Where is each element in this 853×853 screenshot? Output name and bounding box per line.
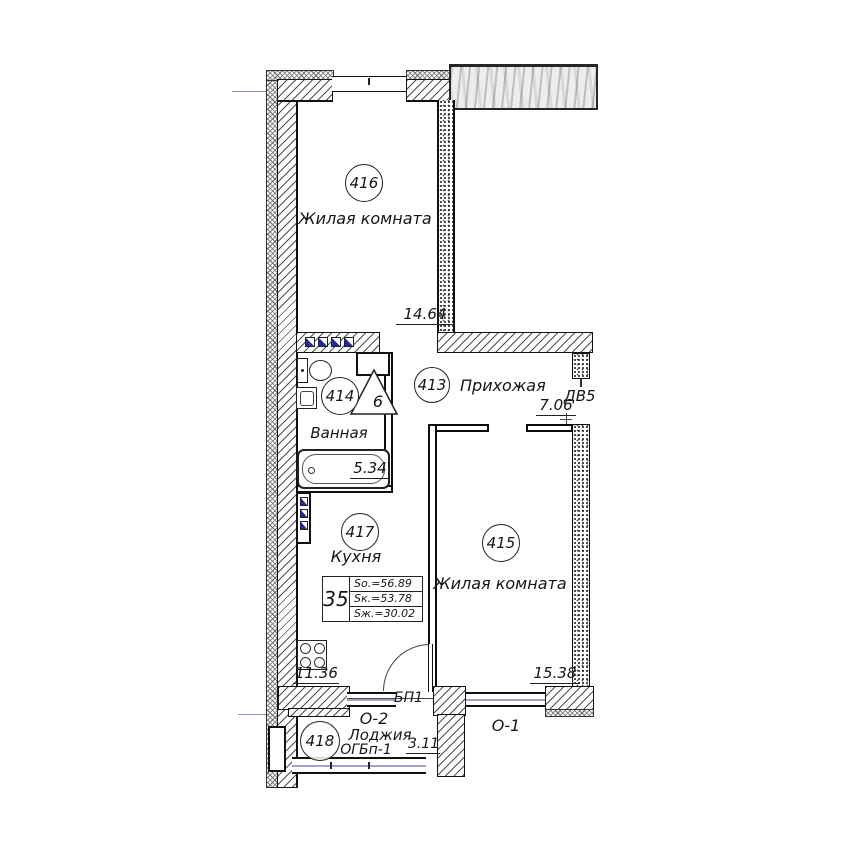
- toilet-cistern: [297, 358, 308, 383]
- stove-burner: [300, 643, 311, 654]
- door-bp1-label: БП1: [394, 690, 423, 706]
- bottom-right-wall: [545, 686, 594, 711]
- room-417-area: 11.36: [293, 664, 339, 684]
- room-416-top-window: [332, 76, 407, 92]
- radiator-symbol: [344, 337, 354, 347]
- room-418-area: 3.11: [406, 736, 440, 754]
- room-416-circle: 416: [345, 164, 383, 202]
- radiator-symbol: [318, 337, 328, 347]
- glazing-mullion: [368, 762, 370, 769]
- radiator-symbol: [331, 337, 341, 347]
- living-area-row: Sж.=30.02: [350, 607, 422, 621]
- room-416-number: 416: [350, 174, 379, 192]
- loggia-top-step: [288, 708, 350, 717]
- apartment-number: 35: [323, 577, 350, 621]
- room-417-number: 417: [346, 523, 375, 541]
- window-mullion-tick: [368, 78, 370, 85]
- right-wall-room-415: [572, 424, 590, 690]
- loggia-right-wall: [437, 714, 465, 777]
- room-415-top-wall-left: [428, 424, 489, 432]
- shaft-marker: [300, 509, 308, 518]
- bottom-right-wall-outer-layer: [545, 709, 594, 717]
- sink: [296, 387, 317, 409]
- window-o1-label: О-1: [480, 716, 532, 735]
- sink-basin: [300, 391, 314, 406]
- radiator-symbol: [305, 337, 315, 347]
- door-dv5-label: ДВ5: [564, 387, 596, 405]
- top-wall-left: [277, 79, 333, 102]
- top-wall-right: [406, 79, 450, 102]
- room-415-number: 415: [487, 534, 516, 552]
- mid-wall-right: [437, 332, 593, 353]
- balcony-door-swing-arc: [383, 644, 430, 691]
- bathtub-drain: [308, 467, 315, 474]
- stove-burner: [314, 643, 325, 654]
- room-414-area: 5.34: [350, 459, 390, 479]
- balcony-door-leaf: [428, 644, 433, 692]
- room-417-circle: 417: [341, 513, 379, 551]
- room-415-circle: 415: [482, 524, 520, 562]
- room-414-name: Ванная: [307, 424, 371, 442]
- room-417-name: Кухня: [320, 547, 392, 566]
- loggia-left-pilaster: [268, 726, 286, 772]
- kitchen-vent-shaft: [296, 492, 311, 544]
- apartment-area-row: Sк.=53.78: [350, 592, 422, 607]
- room-415-window-o1: [466, 692, 545, 707]
- shaft-marker: [300, 497, 308, 506]
- room-416-area: 14.64: [396, 305, 454, 325]
- toilet-bowl: [309, 360, 332, 381]
- kitchen-window-o2: [347, 692, 396, 707]
- pier-between-door-and-window: [433, 686, 466, 716]
- top-right-rough-wall: [449, 64, 598, 110]
- room-413-name: Прихожая: [460, 376, 544, 395]
- room-414-number: 414: [326, 387, 355, 405]
- pier-tick: [580, 379, 582, 387]
- room-414-circle: 414: [321, 377, 359, 415]
- room-415-top-wall-right: [526, 424, 573, 432]
- glazing-mullion: [330, 762, 332, 769]
- right-wall-pier-top: [572, 353, 590, 379]
- glazing: [292, 765, 426, 767]
- total-area-row: Sо.=56.89: [350, 577, 422, 592]
- toilet-button: [301, 369, 304, 372]
- apartment-info-table: 35 Sо.=56.89 Sк.=53.78 Sж.=30.02: [322, 576, 423, 622]
- room-415-name: Жилая комната: [433, 574, 567, 593]
- room-413-circle: 413: [414, 367, 450, 403]
- glazing: [466, 699, 545, 701]
- partition-416-right: [437, 100, 455, 334]
- kitchen-bottom-wall: [278, 686, 350, 710]
- shaft-marker: [300, 521, 308, 530]
- room-413-number: 413: [418, 376, 447, 394]
- vent-duct-number: 6: [373, 392, 383, 411]
- room-416-name: Жилая комната: [298, 209, 432, 228]
- room-415-area: 15.38: [530, 664, 580, 684]
- loggia-glazing-label: ОГБп-1: [330, 742, 402, 758]
